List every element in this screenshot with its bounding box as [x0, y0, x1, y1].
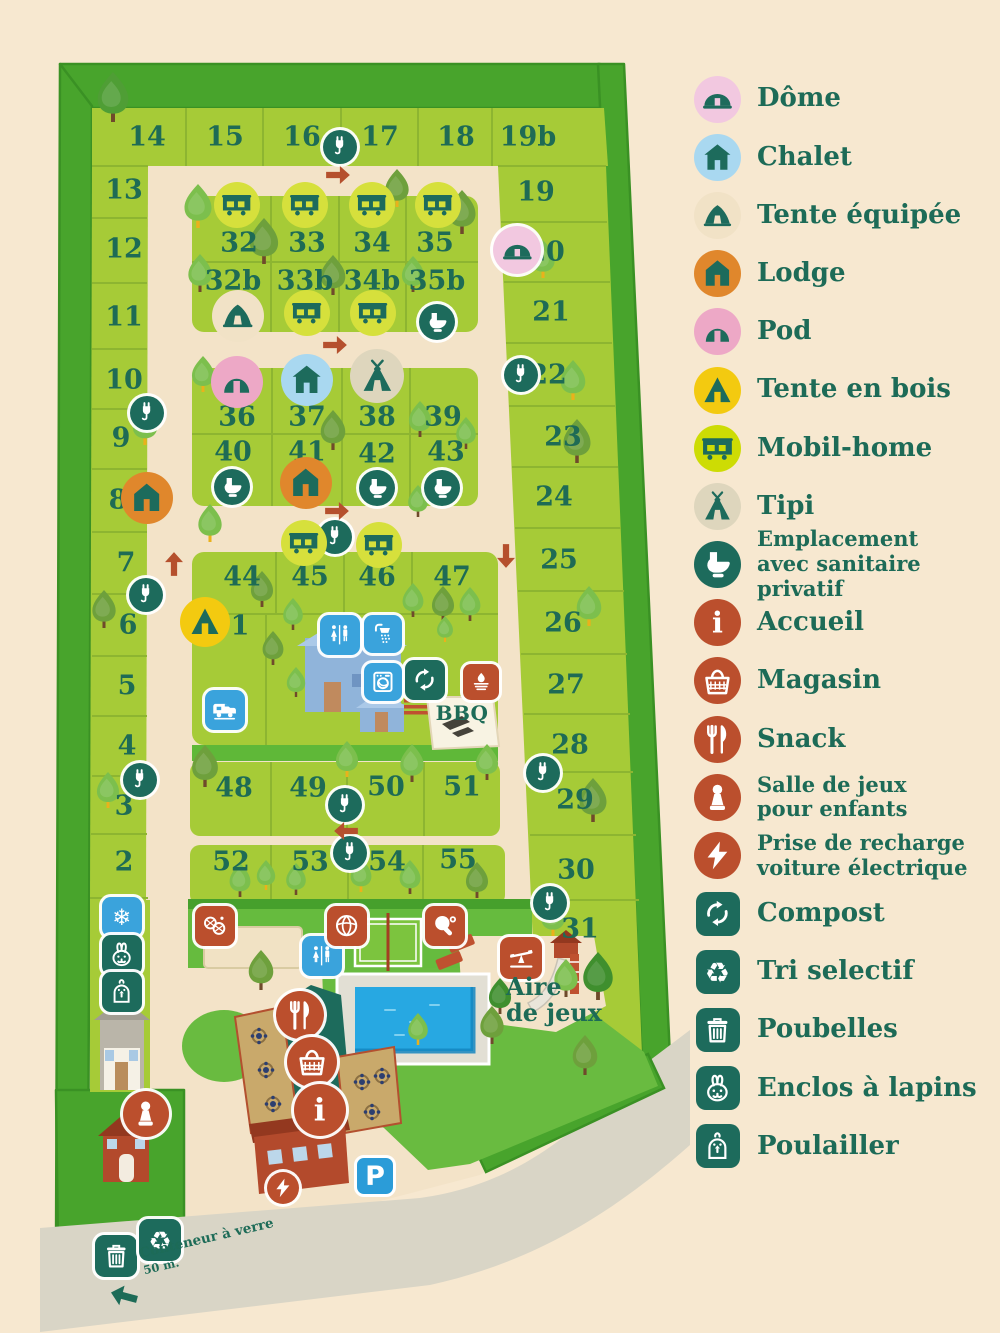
legend-item: Emplacementavec sanitaire privatif [694, 536, 994, 594]
pawn-icon [694, 774, 741, 821]
legend: DômeChaletTente équipéeLodgePodTente en … [694, 70, 994, 1176]
legend-item: Pod [694, 303, 994, 361]
rabbit-icon [696, 1066, 740, 1110]
legend-item: Poulailler [694, 1117, 994, 1175]
legend-label: Dôme [757, 85, 841, 112]
legend-label: Magasin [757, 667, 881, 694]
legend-label: Poulailler [757, 1133, 899, 1160]
mobil-home-icon [694, 425, 741, 472]
legend-item: Tente équipée [694, 186, 994, 244]
cutlery-icon [694, 716, 741, 763]
legend-item: Lodge [694, 245, 994, 303]
legend-item: Mobil-home [694, 419, 994, 477]
legend-label: Lodge [757, 260, 846, 287]
legend-label: Tente équipée [757, 202, 961, 229]
legend-item: Tente en bois [694, 361, 994, 419]
legend-label: Salle de jeuxpour enfants [757, 773, 907, 823]
legend-label: Mobil-home [757, 435, 932, 462]
legend-item: Snack [694, 710, 994, 768]
legend-item: Compost [694, 885, 994, 943]
legend-label: Tri selectif [757, 958, 914, 985]
tipi-icon [694, 483, 741, 530]
chicken-icon [696, 1124, 740, 1168]
legend-label: Accueil [757, 609, 864, 636]
legend-label: Prise de rechargevoiture électrique [757, 831, 967, 881]
legend-item: Chalet [694, 128, 994, 186]
legend-item: Poubelles [694, 1001, 994, 1059]
recycle-icon [696, 950, 740, 994]
compost-icon [696, 892, 740, 936]
legend-item: Magasin [694, 652, 994, 710]
lightning-icon [694, 832, 741, 879]
legend-item: Salle de jeuxpour enfants [694, 768, 994, 826]
campsite-map-page: i ♻ ❄ [0, 0, 1000, 1333]
legend-item: Prise de rechargevoiture électrique [694, 826, 994, 884]
legend-label: Emplacementavec sanitaire privatif [757, 527, 994, 601]
pod-icon [694, 308, 741, 355]
legend-label: Poubelles [757, 1016, 898, 1043]
toilet-icon [694, 541, 741, 588]
sports-strip-top [188, 899, 532, 909]
legend-label: Chalet [757, 144, 852, 171]
dome-icon [694, 76, 741, 123]
basket-icon [694, 657, 741, 704]
lodge-icon [694, 250, 741, 297]
trash-icon [696, 1008, 740, 1052]
legend-item: Enclos à lapins [694, 1059, 994, 1117]
wood-tent-icon [694, 367, 741, 414]
info-icon [694, 599, 741, 646]
legend-label: Tente en bois [757, 376, 951, 403]
chalet-icon [694, 134, 741, 181]
tent-icon [694, 192, 741, 239]
legend-label: Compost [757, 900, 885, 927]
legend-label: Snack [757, 726, 845, 753]
legend-item: Dôme [694, 70, 994, 128]
legend-item: Tri selectif [694, 943, 994, 1001]
legend-label: Pod [757, 318, 811, 345]
legend-label: Tipi [757, 493, 814, 520]
volleyball-court [355, 913, 421, 971]
bbq-area [427, 697, 499, 749]
legend-label: Enclos à lapins [757, 1075, 977, 1102]
legend-item: Accueil [694, 594, 994, 652]
